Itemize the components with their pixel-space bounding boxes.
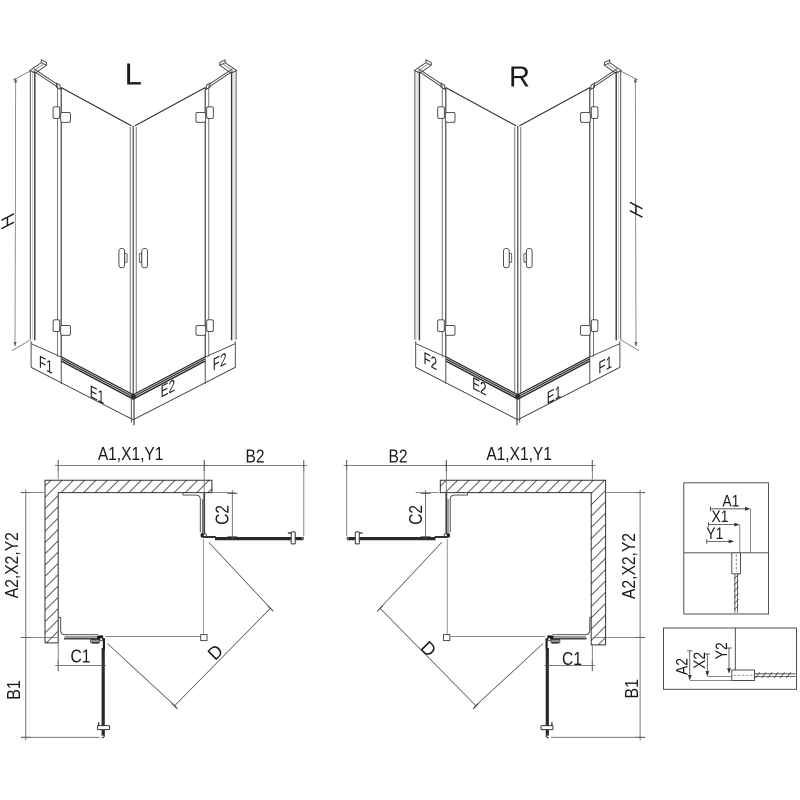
svg-text:A1,X1,Y1: A1,X1,Y1 <box>98 443 164 464</box>
svg-text:L: L <box>125 57 142 92</box>
svg-text:X2: X2 <box>691 652 709 669</box>
svg-text:A1,X1,Y1: A1,X1,Y1 <box>486 443 552 464</box>
svg-text:B1: B1 <box>3 680 24 700</box>
svg-text:Y2: Y2 <box>713 642 731 659</box>
svg-text:B2: B2 <box>389 445 408 466</box>
svg-text:C2: C2 <box>212 505 233 525</box>
svg-text:B2: B2 <box>246 445 265 466</box>
svg-text:Y1: Y1 <box>706 525 723 543</box>
svg-text:A2,X2,Y2: A2,X2,Y2 <box>618 533 639 599</box>
svg-text:B1: B1 <box>621 679 642 699</box>
svg-text:C1: C1 <box>71 645 91 666</box>
svg-text:C1: C1 <box>562 648 582 669</box>
svg-text:R: R <box>509 62 530 94</box>
svg-text:A2: A2 <box>674 658 692 675</box>
svg-text:X1: X1 <box>712 508 729 526</box>
svg-text:A2,X2,Y2: A2,X2,Y2 <box>1 532 22 598</box>
svg-text:C2: C2 <box>405 505 426 525</box>
